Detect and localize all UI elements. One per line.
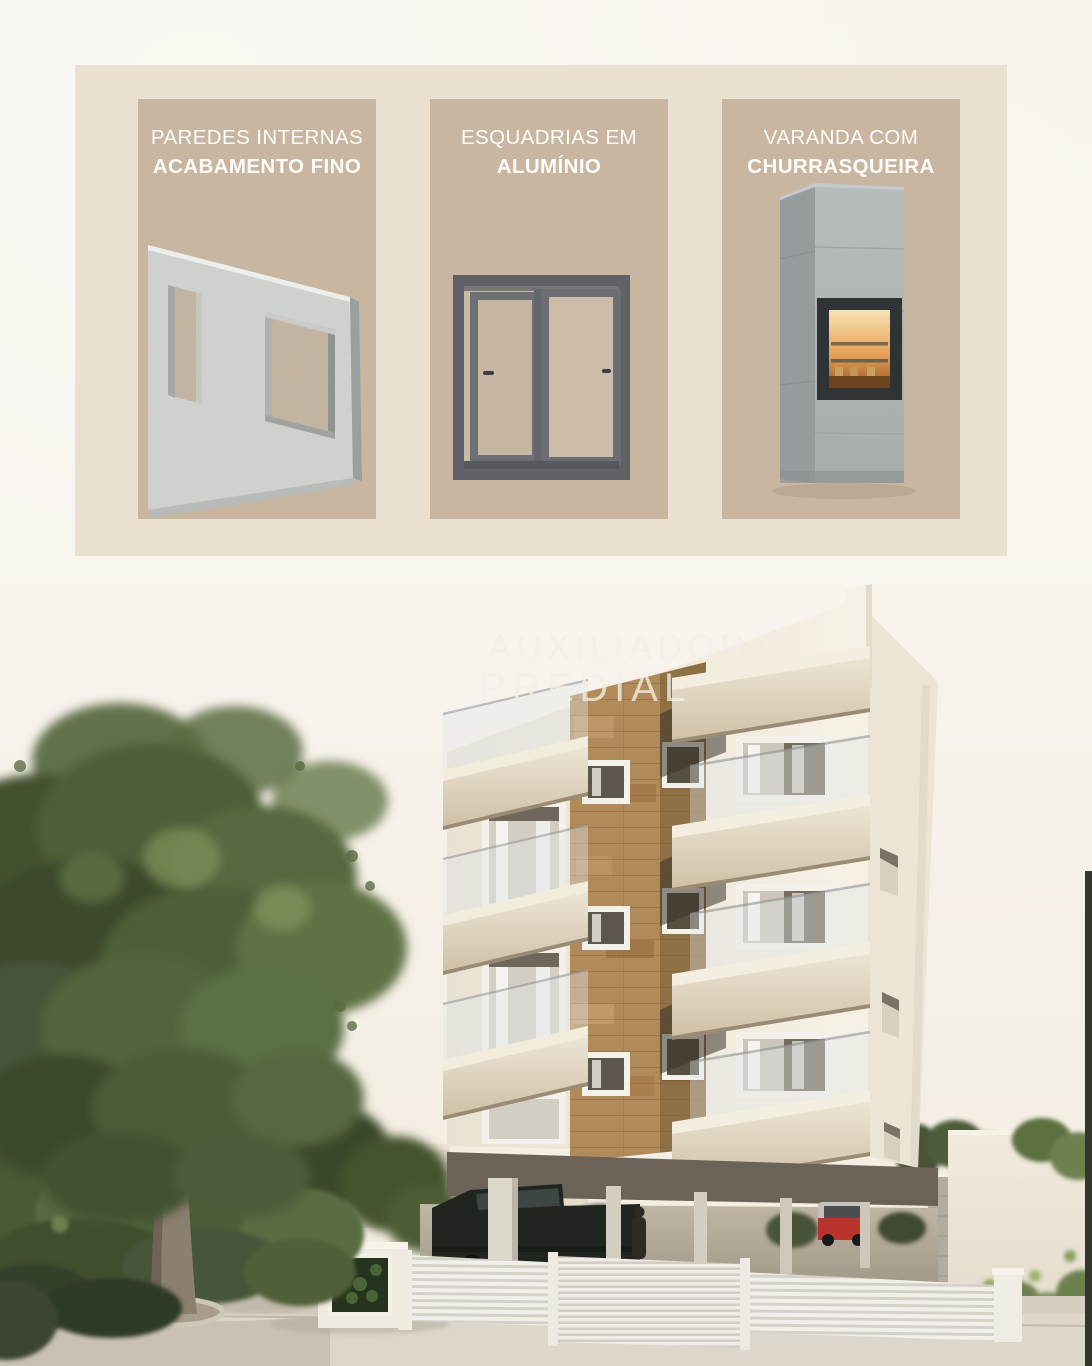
feature-card-varanda: VARANDA COM CHURRASQUEIRA <box>722 99 960 519</box>
watermark-line2: PREDIAL <box>479 666 692 711</box>
feature-card-esquadrias: ESQUADRIAS EM ALUMÍNIO <box>430 99 668 519</box>
card-title: ESQUADRIAS EM ALUMÍNIO <box>430 99 668 181</box>
feature-card-paredes-internas: PAREDES INTERNAS ACABAMENTO FINO <box>138 99 376 519</box>
card-title-line2: ALUMÍNIO <box>430 153 668 182</box>
card-title-line1: PAREDES INTERNAS <box>138 124 376 153</box>
card-title: VARANDA COM CHURRASQUEIRA <box>722 99 960 181</box>
right-edge-shadow <box>1085 871 1092 1366</box>
card-title-line1: VARANDA COM <box>722 124 960 153</box>
real-estate-flyer: PAREDES INTERNAS ACABAMENTO FINO <box>0 0 1092 1366</box>
person-silhouette <box>632 1207 646 1260</box>
card-title-line2: CHURRASQUEIRA <box>722 153 960 182</box>
watermark-line1: AUXILIADORA <box>488 628 778 668</box>
card-title-line2: ACABAMENTO FINO <box>138 153 376 182</box>
card-title: PAREDES INTERNAS ACABAMENTO FINO <box>138 99 376 181</box>
card-title-line1: ESQUADRIAS EM <box>430 124 668 153</box>
features-panel: PAREDES INTERNAS ACABAMENTO FINO <box>75 65 1007 557</box>
building-render: AUXILIADORA PREDIAL <box>0 556 1092 1366</box>
